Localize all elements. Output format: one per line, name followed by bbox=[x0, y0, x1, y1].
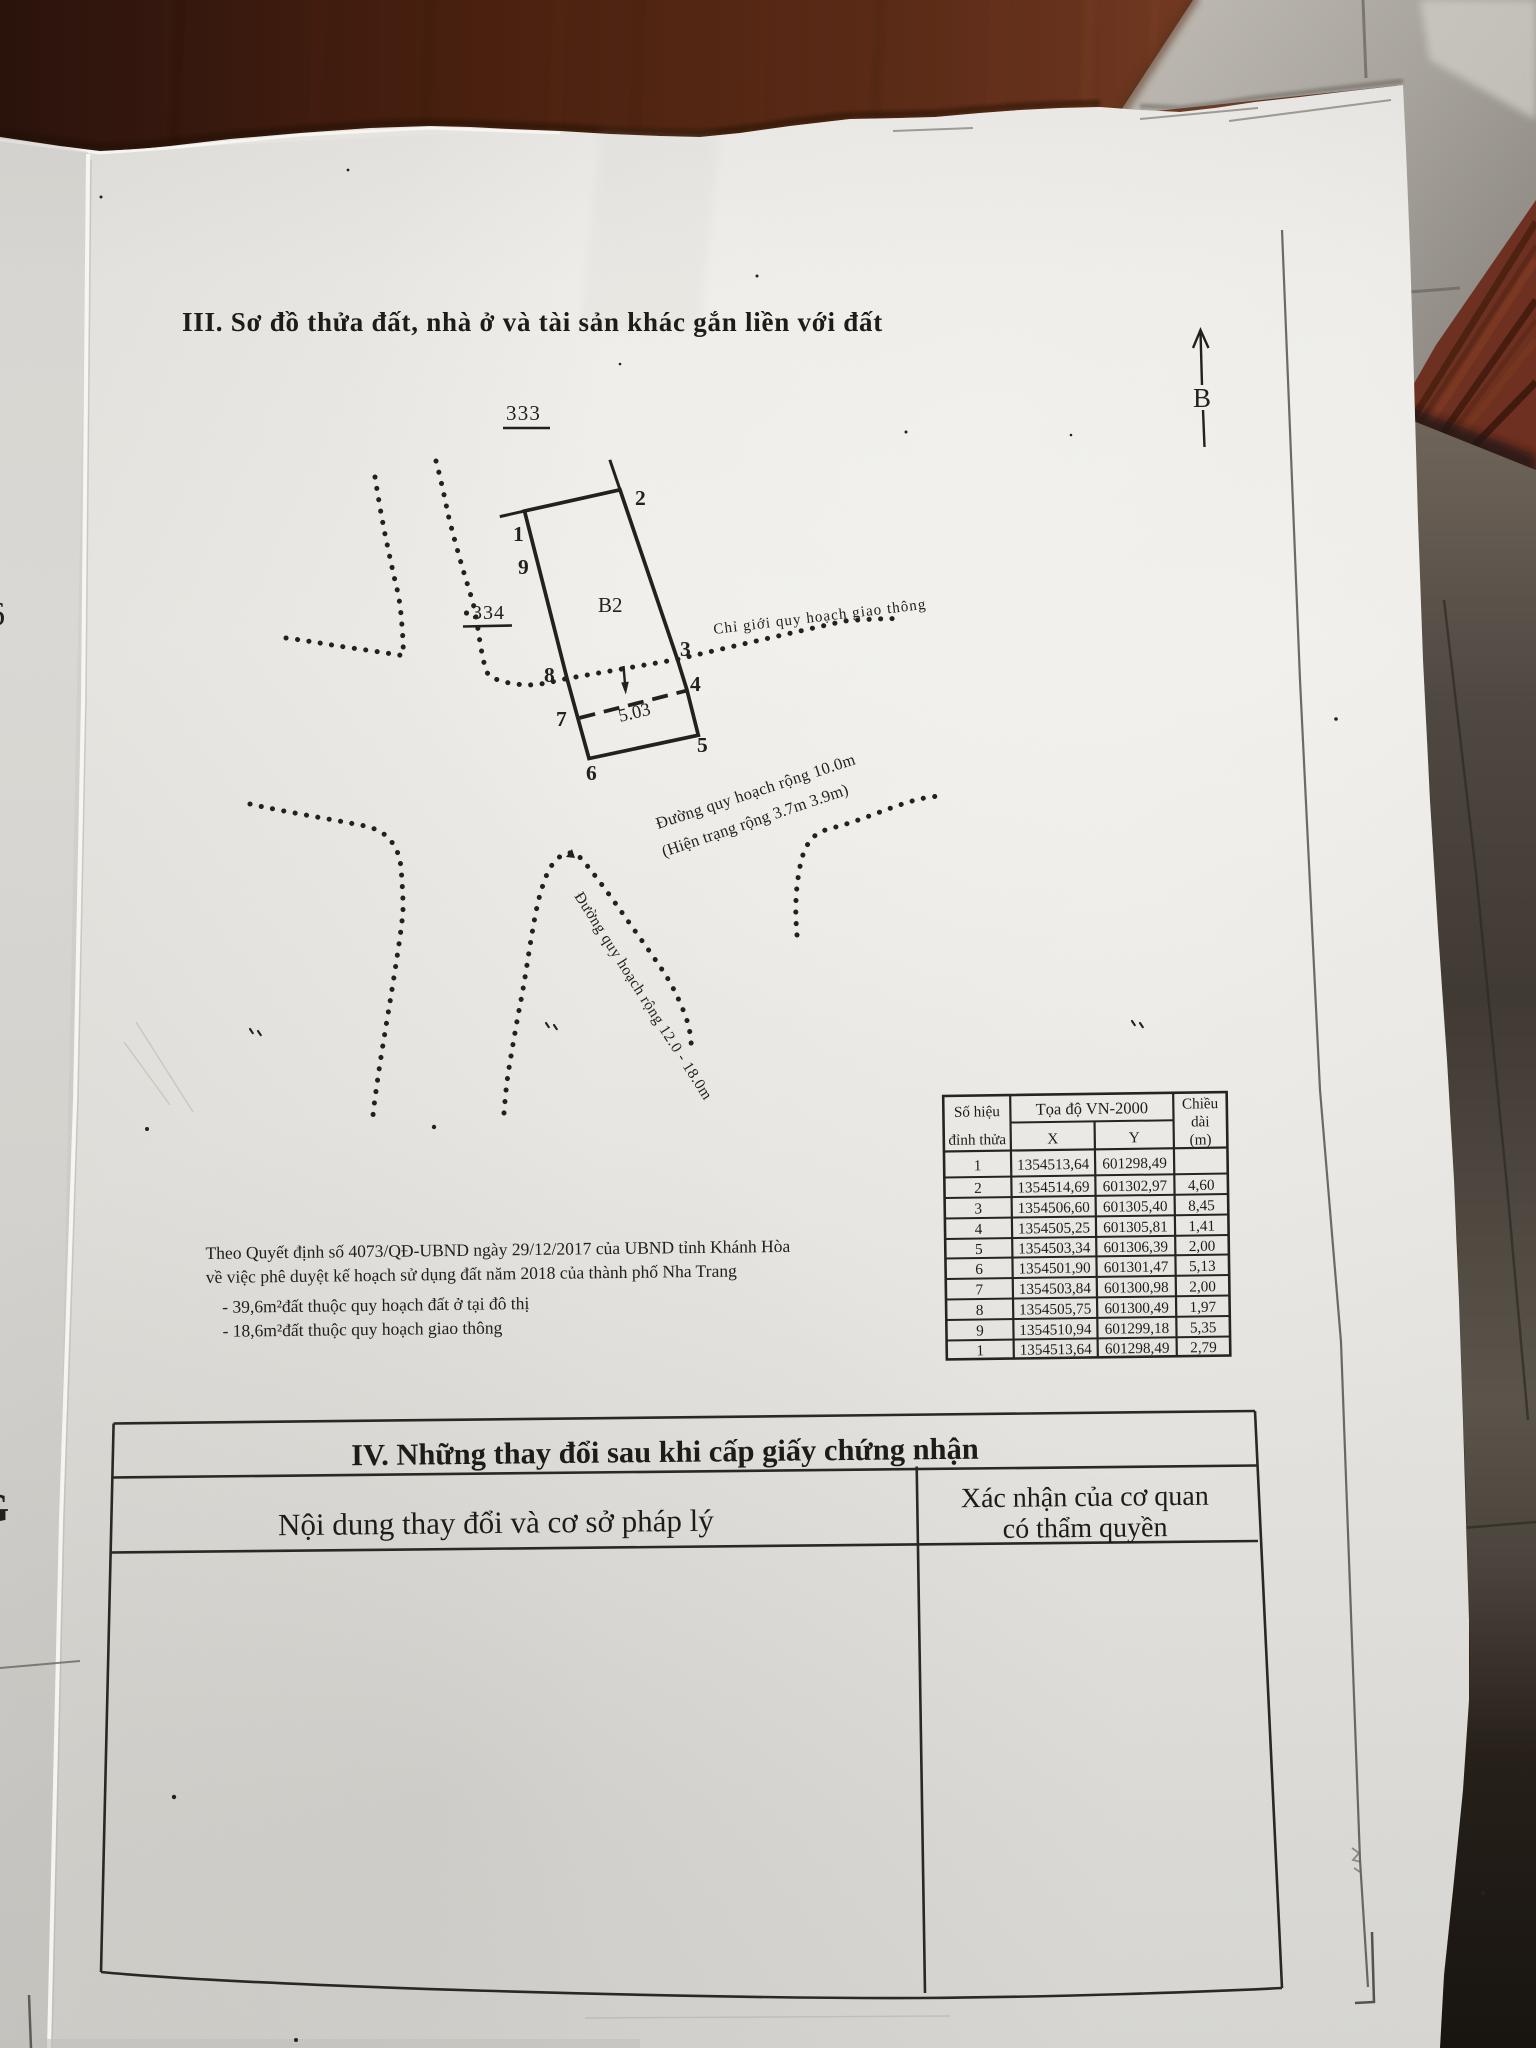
svg-text:có thẩm quyền: có thẩm quyền bbox=[1003, 1512, 1168, 1545]
svg-text:9: 9 bbox=[518, 555, 529, 579]
svg-text:334: 334 bbox=[472, 602, 505, 624]
svg-text:2,00: 2,00 bbox=[1189, 1238, 1216, 1255]
svg-text:đỉnh thửa: đỉnh thửa bbox=[948, 1131, 1006, 1149]
svg-text:4,60: 4,60 bbox=[1188, 1177, 1215, 1194]
svg-text:8,45: 8,45 bbox=[1188, 1197, 1215, 1214]
svg-text:Nội dung thay đổi và cơ sở phá: Nội dung thay đổi và cơ sở pháp lý bbox=[278, 1503, 715, 1543]
svg-text:601300,49: 601300,49 bbox=[1104, 1299, 1169, 1317]
svg-text:1: 1 bbox=[976, 1342, 984, 1359]
svg-text:3: 3 bbox=[974, 1200, 982, 1217]
svg-text:7: 7 bbox=[975, 1281, 983, 1298]
svg-text:7: 7 bbox=[556, 707, 567, 731]
svg-text:1354514,69: 1354514,69 bbox=[1017, 1178, 1089, 1196]
svg-text:dài: dài bbox=[1191, 1113, 1210, 1130]
svg-text:IV. Những thay đổi sau khi cấp: IV. Những thay đổi sau khi cấp giấy chứn… bbox=[351, 1432, 979, 1473]
svg-text:6: 6 bbox=[975, 1261, 983, 1278]
svg-text:1,41: 1,41 bbox=[1188, 1218, 1215, 1235]
svg-text:601298,49: 601298,49 bbox=[1105, 1340, 1170, 1358]
svg-text:1: 1 bbox=[513, 522, 524, 546]
svg-text:5,35: 5,35 bbox=[1190, 1319, 1217, 1336]
svg-text:2: 2 bbox=[974, 1180, 982, 1197]
svg-text:2,79: 2,79 bbox=[1190, 1339, 1217, 1356]
svg-text:601298,49: 601298,49 bbox=[1102, 1155, 1167, 1173]
svg-text:6: 6 bbox=[0, 596, 5, 633]
svg-text:- 18,6m²đất thuộc quy hoạch gi: - 18,6m²đất thuộc quy hoạch giao thông bbox=[222, 1317, 502, 1340]
svg-text:1354506,60: 1354506,60 bbox=[1018, 1199, 1091, 1217]
svg-text:601306,39: 601306,39 bbox=[1103, 1238, 1168, 1256]
svg-text:5: 5 bbox=[697, 733, 708, 757]
svg-text:601300,98: 601300,98 bbox=[1104, 1279, 1169, 1297]
svg-text:2: 2 bbox=[635, 486, 646, 510]
svg-text:Tọa độ VN-2000: Tọa độ VN-2000 bbox=[1036, 1098, 1149, 1119]
svg-text:(m): (m) bbox=[1189, 1131, 1211, 1148]
svg-text:5: 5 bbox=[975, 1241, 983, 1258]
svg-text:601299,18: 601299,18 bbox=[1105, 1320, 1170, 1338]
svg-text:1354503,34: 1354503,34 bbox=[1018, 1239, 1091, 1257]
svg-text:B2: B2 bbox=[598, 593, 623, 617]
svg-text:5,13: 5,13 bbox=[1189, 1258, 1216, 1275]
svg-text:6: 6 bbox=[586, 761, 597, 785]
svg-text:601305,81: 601305,81 bbox=[1103, 1218, 1168, 1236]
svg-text:1354510,94: 1354510,94 bbox=[1019, 1321, 1092, 1339]
svg-text:B: B bbox=[1193, 383, 1211, 413]
svg-text:1354513,64: 1354513,64 bbox=[1020, 1341, 1093, 1359]
svg-text:9: 9 bbox=[976, 1322, 984, 1339]
svg-text:8: 8 bbox=[976, 1302, 984, 1319]
svg-text:Chiều: Chiều bbox=[1182, 1095, 1219, 1113]
svg-text:Xác nhận của cơ quan: Xác nhận của cơ quan bbox=[961, 1481, 1209, 1515]
svg-text:1: 1 bbox=[974, 1157, 982, 1174]
svg-text:4: 4 bbox=[975, 1221, 983, 1238]
svg-text:2,00: 2,00 bbox=[1189, 1278, 1216, 1295]
svg-text:4: 4 bbox=[690, 672, 701, 696]
svg-text:- 39,6m²đất thuộc quy hoạch đấ: - 39,6m²đất thuộc quy hoạch đất ở tại đô… bbox=[222, 1293, 529, 1317]
svg-text:G: G bbox=[0, 1485, 9, 1530]
svg-text:Y: Y bbox=[1129, 1129, 1140, 1146]
svg-text:333: 333 bbox=[506, 401, 541, 425]
svg-text:601305,40: 601305,40 bbox=[1103, 1198, 1168, 1216]
svg-text:1354505,25: 1354505,25 bbox=[1018, 1219, 1090, 1237]
svg-text:601302,97: 601302,97 bbox=[1103, 1177, 1168, 1195]
svg-text:1354503,84: 1354503,84 bbox=[1019, 1280, 1092, 1298]
svg-text:X: X bbox=[1047, 1130, 1058, 1147]
svg-text:1354513,64: 1354513,64 bbox=[1017, 1156, 1090, 1174]
svg-text:III. Sơ đồ thửa đất, nhà ở và: III. Sơ đồ thửa đất, nhà ở và tài sản kh… bbox=[182, 307, 883, 337]
svg-text:601301,47: 601301,47 bbox=[1104, 1258, 1169, 1276]
svg-text:1,97: 1,97 bbox=[1189, 1299, 1216, 1316]
svg-text:1354505,75: 1354505,75 bbox=[1019, 1300, 1091, 1318]
svg-text:Số hiệu: Số hiệu bbox=[954, 1103, 1001, 1121]
svg-text:1354501,90: 1354501,90 bbox=[1018, 1259, 1091, 1277]
